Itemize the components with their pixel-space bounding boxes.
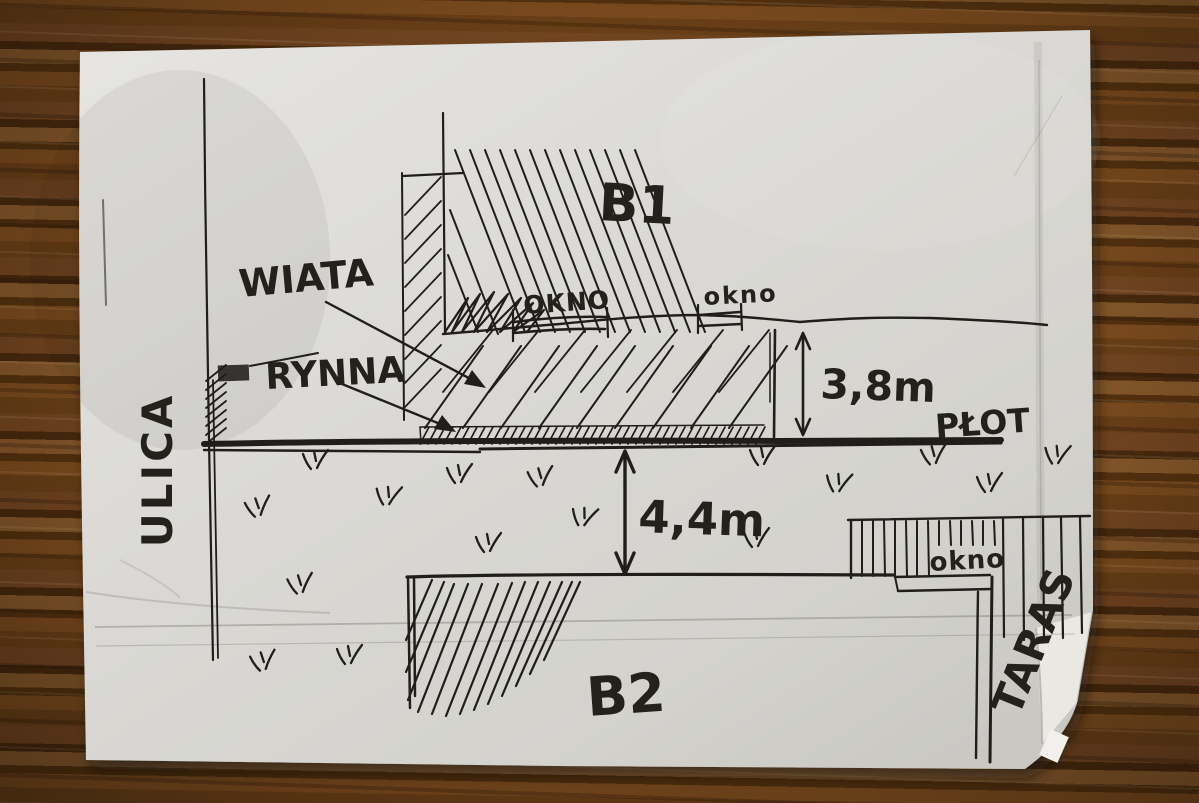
street-label: ULICA — [133, 393, 182, 548]
window-bottom-label: okno — [929, 544, 1006, 578]
fence-label: PŁOT — [934, 400, 1032, 446]
dimension-3-8-label: 3,8m — [820, 360, 937, 412]
b1-label: B1 — [597, 173, 676, 237]
paper-envelope — [30, 30, 1100, 769]
window-top-left-label: OKNO — [522, 285, 611, 320]
window-top-right-label: okno — [703, 279, 778, 311]
photo-of-sketch: ULICA B1 O — [0, 0, 1199, 803]
gate-mark — [218, 364, 250, 381]
rynna-label: RYNNA — [264, 350, 406, 398]
b2-label: B2 — [585, 661, 668, 729]
paper-highlight — [660, 30, 1100, 250]
sketch-svg: ULICA B1 O — [0, 0, 1199, 803]
